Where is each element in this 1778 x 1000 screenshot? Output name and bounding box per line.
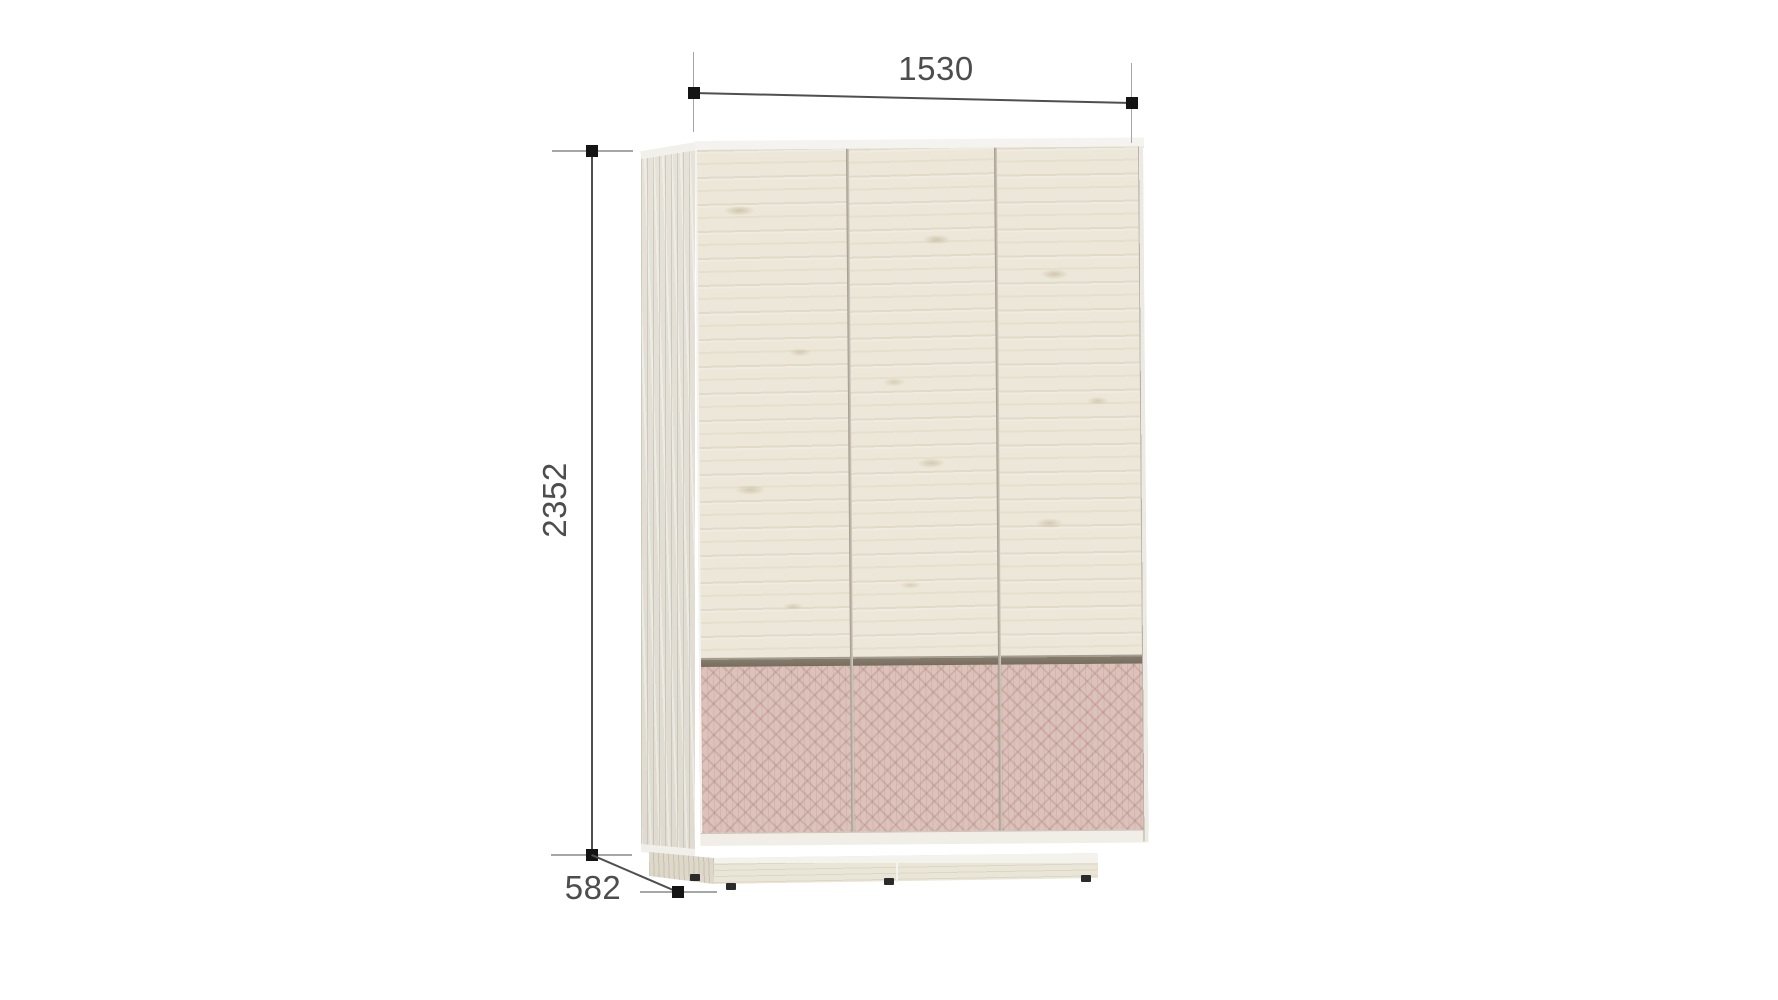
dimension-end-marker [688, 87, 700, 99]
height-dimension-label: 2352 [536, 462, 574, 537]
wardrobe-upper-doors [695, 146, 1147, 658]
wardrobe-foot [726, 883, 736, 890]
wardrobe-foot [884, 878, 894, 885]
dimension-line-width [694, 92, 1132, 104]
plinth-side-face [649, 851, 714, 884]
wardrobe-lower-drawers [699, 663, 1148, 833]
diagram-canvas: 1530 2352 582 [0, 0, 1778, 1000]
drawer-panel-right [1001, 664, 1143, 831]
wardrobe-side-panel [641, 150, 695, 849]
dimension-end-marker [1126, 97, 1138, 109]
dimension-line-height [591, 151, 593, 855]
drawer-panel-left [701, 666, 851, 833]
wardrobe-foot [1081, 875, 1091, 882]
wardrobe-door-right [997, 147, 1142, 656]
wardrobe-door-left [697, 149, 850, 658]
plinth-seam [896, 856, 898, 882]
wardrobe-bottom-edge [700, 829, 1148, 846]
drawer-panel-center [853, 665, 999, 832]
dimension-end-marker [672, 886, 684, 898]
dimension-end-marker [586, 145, 598, 157]
wardrobe-front-face [695, 146, 1148, 844]
wardrobe-foot [690, 874, 700, 881]
width-dimension-label: 1530 [898, 50, 973, 88]
wardrobe-door-center [849, 148, 998, 657]
plinth-front-face [714, 852, 1098, 884]
depth-dimension-label: 582 [565, 869, 622, 907]
